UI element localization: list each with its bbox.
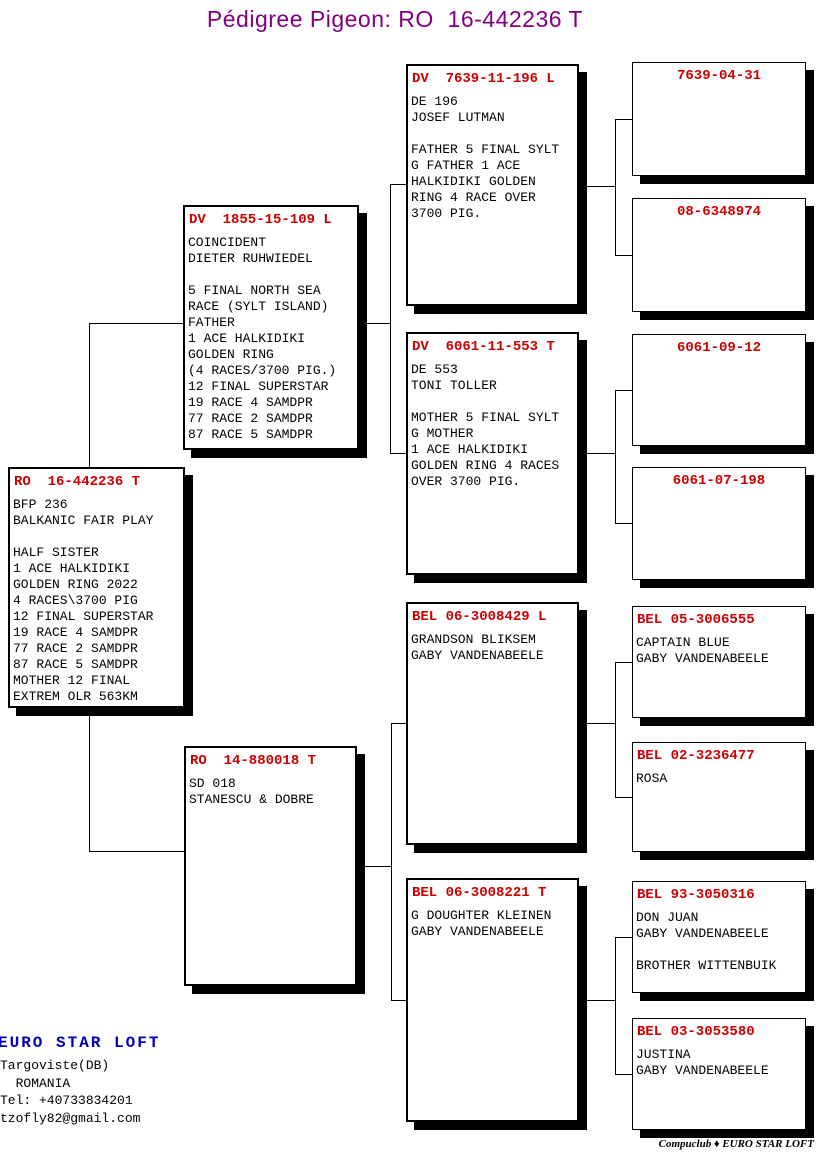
pigeon-details: SD 018 STANESCU & DOBRE	[186, 770, 355, 808]
ring-number: 6061-07-198	[633, 468, 805, 490]
ring-number: DV 1855-15-109 L	[185, 207, 357, 229]
pedigree-box-gg6: BEL 02-3236477 ROSA	[632, 742, 806, 852]
connector-line	[89, 323, 90, 467]
pedigree-box-gg1: 7639-04-31	[632, 62, 806, 176]
page-title: Pédigree Pigeon: RO 16-442236 T	[0, 6, 790, 33]
ring-number: BEL 06-3008221 T	[408, 880, 577, 902]
ring-number: DV 7639-11-196 L	[408, 66, 577, 88]
pigeon-details: JUSTINA GABY VANDENABEELE	[633, 1041, 805, 1079]
ring-number: DV 6061-11-553 T	[408, 334, 577, 356]
connector-line	[578, 453, 615, 454]
pedigree-box-gg7: BEL 93-3050316 DON JUAN GABY VANDENABEEL…	[632, 881, 806, 993]
connector-line	[356, 866, 391, 867]
connector-line	[89, 851, 184, 852]
connector-line	[615, 119, 616, 255]
pedigree-box-subject: RO 16-442236 T BFP 236 BALKANIC FAIR PLA…	[8, 467, 185, 708]
connector-line	[615, 390, 632, 391]
connector-line	[615, 390, 616, 523]
pigeon-details: ROSA	[633, 765, 805, 787]
connector-line	[89, 323, 183, 324]
pedigree-box-gg4: 6061-07-198	[632, 467, 806, 580]
connector-line	[578, 723, 615, 724]
ring-number: 7639-04-31	[633, 63, 805, 85]
pigeon-details: CAPTAIN BLUE GABY VANDENABEELE	[633, 629, 805, 667]
ring-number: RO 16-442236 T	[10, 469, 183, 491]
pigeon-details: G DOUGHTER KLEINEN GABY VANDENABEELE	[408, 902, 577, 940]
pedigree-box-sire-dam: DV 6061-11-553 T DE 553 TONI TOLLER MOTH…	[406, 332, 579, 575]
pedigree-box-sire: DV 1855-15-109 L COINCIDENT DIETER RUHWI…	[183, 205, 359, 450]
pedigree-box-dam: RO 14-880018 T SD 018 STANESCU & DOBRE	[184, 746, 357, 986]
pigeon-details: BFP 236 BALKANIC FAIR PLAY HALF SISTER 1…	[10, 491, 183, 705]
connector-line	[391, 723, 392, 1000]
connector-line	[390, 453, 406, 454]
ring-number: BEL 05-3006555	[633, 607, 805, 629]
ring-number: 6061-09-12	[633, 335, 805, 357]
connector-line	[615, 523, 632, 524]
connector-line	[358, 323, 390, 324]
connector-line	[391, 723, 406, 724]
pedigree-box-gg3: 6061-09-12	[632, 334, 806, 446]
connector-line	[615, 662, 632, 663]
pedigree-box-gg8: BEL 03-3053580 JUSTINA GABY VANDENABEELE	[632, 1018, 806, 1130]
connector-line	[615, 937, 616, 1074]
pigeon-details: COINCIDENT DIETER RUHWIEDEL 5 FINAL NORT…	[185, 229, 357, 443]
ring-number: BEL 02-3236477	[633, 743, 805, 765]
pedigree-box-dam-sire: BEL 06-3008429 L GRANDSON BLIKSEM GABY V…	[406, 602, 579, 845]
connector-line	[615, 255, 632, 256]
connector-line	[89, 707, 90, 851]
ring-number: BEL 03-3053580	[633, 1019, 805, 1041]
connector-line	[578, 186, 615, 187]
ring-number: BEL 93-3050316	[633, 882, 805, 904]
compuclub-credit: Compuclub ♦ EURO STAR LOFT	[659, 1138, 814, 1150]
connector-line	[391, 1000, 406, 1001]
pigeon-details: GRANDSON BLIKSEM GABY VANDENABEELE	[408, 626, 577, 664]
ring-number: BEL 06-3008429 L	[408, 604, 577, 626]
connector-line	[390, 184, 391, 453]
ring-number: 08-6348974	[633, 199, 805, 221]
loft-info: EURO STAR LOFT Targoviste(DB) ROMANIA Te…	[0, 1034, 160, 1127]
pigeon-details: DE 196 JOSEF LUTMAN FATHER 5 FINAL SYLT …	[408, 88, 577, 222]
pigeon-details: DON JUAN GABY VANDENABEELE BROTHER WITTE…	[633, 904, 805, 974]
pedigree-box-gg2: 08-6348974	[632, 198, 806, 312]
loft-address: Targoviste(DB) ROMANIA Tel: +40733834201…	[0, 1057, 160, 1127]
loft-name: EURO STAR LOFT	[0, 1034, 160, 1052]
connector-line	[615, 662, 616, 797]
pedigree-box-dam-dam: BEL 06-3008221 T G DOUGHTER KLEINEN GABY…	[406, 878, 579, 1122]
connector-line	[615, 1074, 632, 1075]
ring-number: RO 14-880018 T	[186, 748, 355, 770]
connector-line	[615, 937, 632, 938]
connector-line	[615, 119, 632, 120]
pigeon-details: DE 553 TONI TOLLER MOTHER 5 FINAL SYLT G…	[408, 356, 577, 490]
connector-line	[615, 797, 632, 798]
connector-line	[390, 184, 406, 185]
pedigree-box-gg5: BEL 05-3006555 CAPTAIN BLUE GABY VANDENA…	[632, 606, 806, 718]
connector-line	[578, 1000, 615, 1001]
pedigree-box-sire-sire: DV 7639-11-196 L DE 196 JOSEF LUTMAN FAT…	[406, 64, 579, 306]
